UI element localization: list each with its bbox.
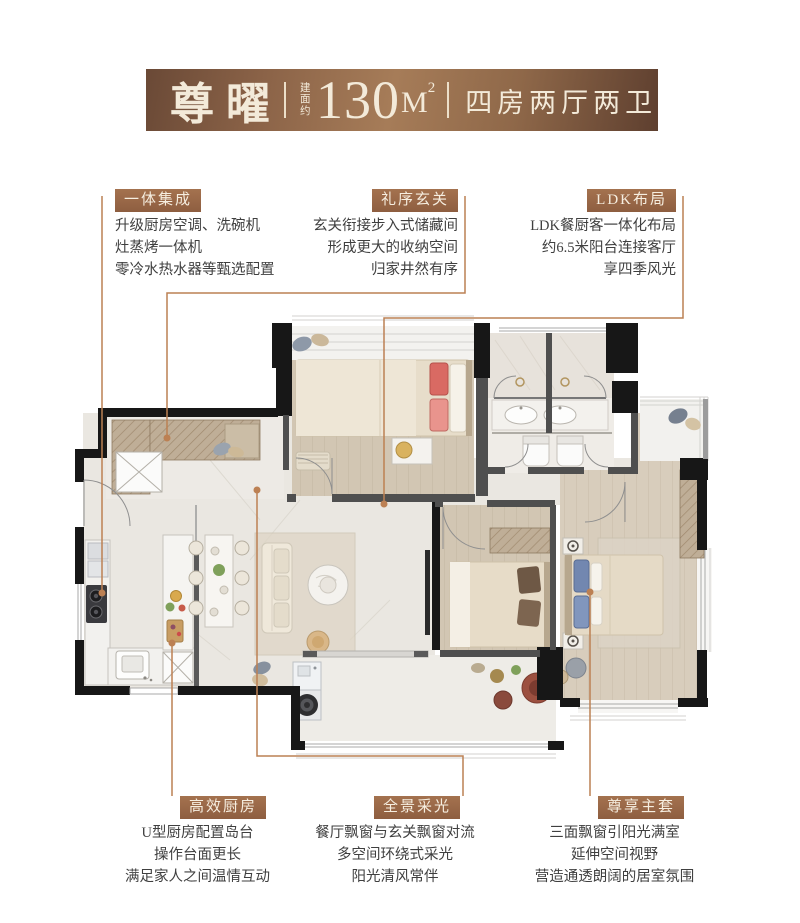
tag-ldk-layout: LDK布局 <box>587 189 676 212</box>
note-line: 零冷水热水器等甄选配置 <box>115 259 295 281</box>
note-line: 满足家人之间温情互动 <box>110 866 285 888</box>
note-line: 营造通透朗阔的居室氛围 <box>522 866 707 888</box>
note-line: 享四季风光 <box>496 259 676 281</box>
note-efficient-kitchen: U型厨房配置岛台 操作台面更长 满足家人之间温情互动 <box>110 822 285 888</box>
note-line: 约6.5米阳台连接客厅 <box>496 237 676 259</box>
tag-entry-hall: 礼序玄关 <box>372 189 458 212</box>
area-value: 130 <box>316 73 400 127</box>
area-prefix: 建面约 <box>300 83 313 118</box>
note-line: U型厨房配置岛台 <box>110 822 285 844</box>
tag-efficient-kitchen: 高效厨房 <box>180 796 266 819</box>
note-line: 玄关衔接步入式储藏间 <box>288 215 458 237</box>
area-superscript: 2 <box>428 80 436 96</box>
tag-panoramic-light: 全景采光 <box>374 796 460 819</box>
note-line: 归家井然有序 <box>288 259 458 281</box>
note-line: 形成更大的收纳空间 <box>288 237 458 259</box>
note-line: 操作台面更长 <box>110 844 285 866</box>
note-line: LDK餐厨客一体化布局 <box>496 215 676 237</box>
note-ldk-layout: LDK餐厨客一体化布局 约6.5米阳台连接客厅 享四季风光 <box>496 215 676 281</box>
note-line: 灶蒸烤一体机 <box>115 237 295 259</box>
note-line: 三面飘窗引阳光满室 <box>522 822 707 844</box>
banner-divider <box>284 82 286 118</box>
tag-integrated-appliances: 一体集成 <box>115 189 201 212</box>
note-line: 餐厅飘窗与玄关飘窗对流 <box>305 822 485 844</box>
banner-divider <box>447 82 449 118</box>
leader-dot-efficient-kitchen <box>169 640 176 647</box>
floorplan-page: { "header": { "name": "尊曜", "area_prefix… <box>0 0 800 923</box>
note-line: 升级厨房空调、洗碗机 <box>115 215 295 237</box>
tag-master-suite: 尊享主套 <box>598 796 684 819</box>
note-panoramic-light: 餐厅飘窗与玄关飘窗对流 多空间环绕式采光 阳光清风常伴 <box>305 822 485 888</box>
layout-text: 四房两厅两卫 <box>465 81 657 120</box>
leader-dot-integrated-appliances <box>99 590 106 597</box>
unit-name: 尊曜 <box>170 68 282 132</box>
note-line: 延伸空间视野 <box>522 844 707 866</box>
note-integrated-appliances: 升级厨房空调、洗碗机 灶蒸烤一体机 零冷水热水器等甄选配置 <box>115 215 295 281</box>
title-banner: 尊曜 建面约 130 M2 四房两厅两卫 <box>146 69 658 131</box>
note-line: 多空间环绕式采光 <box>305 844 485 866</box>
leader-dot-entry-hall <box>164 435 171 442</box>
note-entry-hall: 玄关衔接步入式储藏间 形成更大的收纳空间 归家井然有序 <box>288 215 458 281</box>
note-line: 阳光清风常伴 <box>305 866 485 888</box>
area-unit: M2 <box>401 80 435 120</box>
leader-dot-master-suite <box>587 589 594 596</box>
leader-dot-ldk-layout <box>381 501 388 508</box>
note-master-suite: 三面飘窗引阳光满室 延伸空间视野 营造通透朗阔的居室氛围 <box>522 822 707 888</box>
leader-dot-panoramic-light <box>254 487 261 494</box>
floorplan-image <box>0 0 800 923</box>
